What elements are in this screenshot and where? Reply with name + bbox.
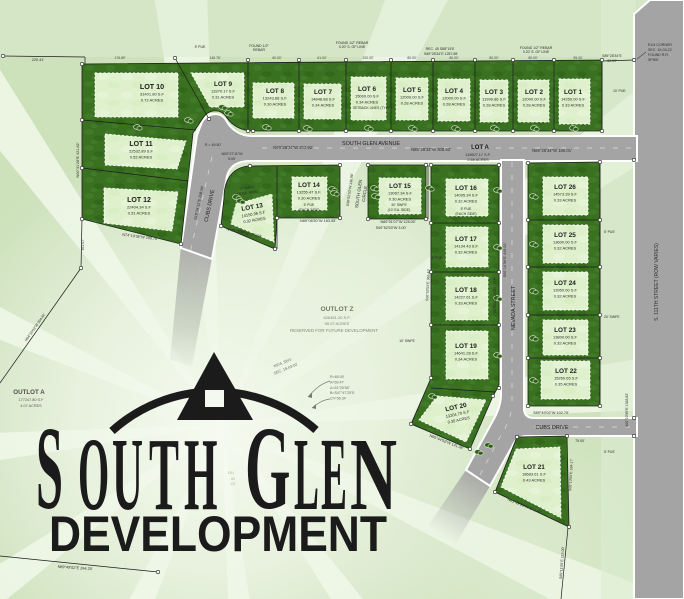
- svg-text:LOT 21: LOT 21: [523, 464, 545, 471]
- svg-text:S. 111TH STREET (ROW VARIES): S. 111TH STREET (ROW VARIES): [654, 243, 660, 321]
- svg-text:14134.43 S.F: 14134.43 S.F: [454, 244, 479, 249]
- svg-text:CS: CS: [231, 482, 236, 486]
- svg-text:220.41': 220.41': [32, 58, 45, 62]
- svg-text:60.00': 60.00': [607, 59, 617, 63]
- svg-text:REBAR: REBAR: [253, 48, 266, 52]
- svg-text:5' PUE: 5' PUE: [195, 45, 206, 49]
- svg-text:0.43 ACRES: 0.43 ACRES: [523, 478, 546, 483]
- svg-text:626451.20 S.F.: 626451.20 S.F.: [324, 315, 351, 320]
- svg-text:0.32 ACRES: 0.32 ACRES: [554, 294, 577, 299]
- svg-text:10' SWFE: 10' SWFE: [399, 339, 415, 343]
- svg-text:95.97 ACRES: 95.97 ACRES: [325, 321, 350, 326]
- svg-text:14641.28 S.F: 14641.28 S.F: [454, 351, 479, 356]
- svg-text:SETBACK LINES (TYP): SETBACK LINES (TYP): [493, 277, 497, 313]
- svg-text:11999.86 S.F: 11999.86 S.F: [482, 97, 506, 102]
- svg-text:LOT 9: LOT 9: [214, 81, 233, 88]
- svg-text:161.57': 161.57': [81, 239, 85, 251]
- svg-text:R = 49.50': R = 49.50': [205, 143, 222, 147]
- svg-text:B=S47°47'25"E: B=S47°47'25"E: [330, 391, 355, 395]
- svg-text:(10' EA. SIDE): (10' EA. SIDE): [388, 208, 411, 212]
- svg-text:LOT 22: LOT 22: [555, 368, 577, 375]
- svg-text:REC. 45 S88°19'E: REC. 45 S88°19'E: [426, 47, 455, 51]
- svg-text:0.31 ACRES: 0.31 ACRES: [212, 95, 235, 100]
- svg-text:LOT 18: LOT 18: [455, 287, 477, 294]
- svg-text:N89°08'30"W 183.95': N89°08'30"W 183.95': [300, 219, 336, 223]
- svg-text:LOT 1: LOT 1: [564, 89, 583, 96]
- svg-text:119607.17 S.F.: 119607.17 S.F.: [465, 153, 490, 157]
- svg-text:LOT 25: LOT 25: [554, 232, 576, 239]
- svg-text:DEVELOPMENT: DEVELOPMENT: [49, 506, 387, 562]
- svg-text:0.34 ACRES: 0.34 ACRES: [455, 357, 478, 362]
- svg-text:LOT 16: LOT 16: [455, 185, 477, 192]
- svg-text:SOUTH GLEN AVENUE: SOUTH GLEN AVENUE: [342, 141, 400, 147]
- svg-text:OU: OU: [228, 470, 234, 475]
- svg-text:13370.17 S.F: 13370.17 S.F: [211, 89, 236, 94]
- svg-text:S89°49'02"W 102.79': S89°49'02"W 102.79': [533, 411, 569, 415]
- svg-text:RESERVED FOR FUTURE DEVELOPMEN: RESERVED FOR FUTURE DEVELOPMENT: [290, 328, 378, 333]
- svg-text:80.00': 80.00': [528, 56, 537, 60]
- svg-text:(EACH SIDE): (EACH SIDE): [298, 208, 319, 212]
- svg-text:18683.61 S.F: 18683.61 S.F: [522, 472, 547, 477]
- svg-text:0.32 ACRES: 0.32 ACRES: [554, 341, 577, 346]
- svg-text:N00°31'26"E 421.82': N00°31'26"E 421.82': [76, 142, 80, 177]
- svg-text:80.00': 80.00': [489, 56, 498, 60]
- svg-text:2.68 ACRES: 2.68 ACRES: [467, 158, 489, 162]
- svg-text:13255.47 S.F.: 13255.47 S.F.: [297, 190, 322, 195]
- svg-text:0.32 ACRES: 0.32 ACRES: [455, 250, 478, 255]
- svg-text:0.28 ACRES: 0.28 ACRES: [401, 101, 424, 106]
- svg-text:31401.80 S.F: 31401.80 S.F: [140, 92, 165, 97]
- svg-text:LOT A: LOT A: [471, 145, 489, 151]
- svg-text:Ch=56.34': Ch=56.34': [330, 397, 347, 401]
- svg-text:NEVADA STREET: NEVADA STREET: [511, 285, 517, 330]
- svg-text:R=65.00': R=65.00': [330, 375, 345, 379]
- svg-text:0.33 ACRES: 0.33 ACRES: [562, 103, 585, 108]
- svg-text:0.20' S. OF LINE: 0.20' S. OF LINE: [523, 50, 550, 54]
- svg-text:100.00': 100.00': [362, 56, 373, 60]
- svg-text:N89°28'34"W 308.93': N89°28'34"W 308.93': [411, 147, 451, 152]
- svg-text:14848.88 S.F: 14848.88 S.F: [311, 97, 336, 102]
- svg-text:S89°28'34"E: S89°28'34"E: [602, 54, 622, 58]
- svg-text:0.32 ACRES: 0.32 ACRES: [455, 199, 478, 204]
- svg-text:176.89': 176.89': [114, 56, 125, 60]
- svg-text:0.32 ACRES: 0.32 ACRES: [554, 246, 577, 251]
- svg-text:80.00': 80.00': [449, 56, 458, 60]
- svg-text:80.00': 80.00': [407, 56, 416, 60]
- svg-text:Δ=51°25'58": Δ=51°25'58": [330, 386, 351, 390]
- svg-text:FOUND R.R.: FOUND R.R.: [648, 53, 669, 57]
- svg-text:LOT 23: LOT 23: [554, 327, 576, 334]
- svg-text:13067.34 S.F: 13067.34 S.F: [388, 191, 413, 196]
- svg-text:0.30 ACRES: 0.30 ACRES: [264, 102, 287, 107]
- svg-text:0.35 ACRES: 0.35 ACRES: [555, 382, 578, 387]
- svg-text:95.00': 95.00': [573, 56, 582, 60]
- svg-text:5' PUE: 5' PUE: [304, 203, 315, 207]
- svg-text:LOT 19: LOT 19: [455, 343, 477, 350]
- svg-text:0.72 ACRES: 0.72 ACRES: [141, 98, 164, 103]
- svg-text:145.76': 145.76': [209, 56, 220, 60]
- svg-text:13243.68 S.F.: 13243.68 S.F.: [263, 96, 288, 101]
- svg-text:14573.39 S.F: 14573.39 S.F: [553, 192, 578, 197]
- svg-text:N89°28'34"W 180.01': N89°28'34"W 180.01': [532, 148, 572, 153]
- svg-text:OUTLOT A: OUTLOT A: [13, 389, 45, 396]
- svg-text:LOT 2: LOT 2: [525, 89, 544, 96]
- svg-text:LOT 8: LOT 8: [266, 88, 285, 95]
- svg-text:N89°01'07"W 125.00': N89°01'07"W 125.00': [381, 220, 416, 224]
- svg-text:CUBS DRIVE: CUBS DRIVE: [536, 425, 569, 431]
- svg-text:0.52 ACRES: 0.52 ACRES: [130, 155, 153, 160]
- svg-text:LOT 5: LOT 5: [403, 87, 422, 94]
- svg-text:N89°28'34"W 253.92': N89°28'34"W 253.92': [273, 145, 313, 150]
- svg-text:S00°52'53"W 3.00': S00°52'53"W 3.00': [376, 226, 407, 230]
- svg-text:14227.61 S.F: 14227.61 S.F: [454, 295, 479, 300]
- svg-text:14250.00 S.F: 14250.00 S.F: [561, 97, 586, 102]
- svg-text:SPIKE: SPIKE: [648, 58, 659, 62]
- svg-text:60: 60: [231, 477, 235, 481]
- svg-text:0.51 ACRES: 0.51 ACRES: [128, 211, 151, 216]
- svg-text:LOT 3: LOT 3: [485, 89, 504, 96]
- svg-text:61.00': 61.00': [317, 56, 326, 60]
- svg-text:10' PUE: 10' PUE: [613, 89, 626, 93]
- svg-text:LOT 12: LOT 12: [127, 197, 151, 204]
- svg-text:LOT 17: LOT 17: [455, 236, 477, 243]
- svg-text:0.20' S. OF LINE: 0.20' S. OF LINE: [339, 45, 366, 49]
- svg-text:LOT 11: LOT 11: [129, 141, 152, 148]
- svg-text:0.28 ACRES: 0.28 ACRES: [523, 103, 546, 108]
- svg-text:30' SWFE: 30' SWFE: [391, 203, 407, 207]
- svg-text:22404.34 S.F: 22404.34 S.F: [127, 205, 152, 210]
- svg-text:LOT 10: LOT 10: [140, 82, 164, 91]
- svg-text:60.00': 60.00': [272, 56, 281, 60]
- svg-text:LOT 7: LOT 7: [314, 89, 333, 96]
- svg-text:0.33 ACRES: 0.33 ACRES: [455, 301, 478, 306]
- svg-text:LOT 4: LOT 4: [445, 88, 464, 95]
- svg-text:5' PUE: 5' PUE: [604, 450, 615, 454]
- svg-text:LOT 14: LOT 14: [298, 182, 320, 189]
- svg-text:LOT 26: LOT 26: [554, 184, 576, 191]
- svg-text:0.28 ACRES: 0.28 ACRES: [483, 103, 506, 108]
- svg-text:S00°10'56"E 1328.82': S00°10'56"E 1328.82': [625, 393, 629, 427]
- svg-text:5' PUE: 5' PUE: [604, 230, 615, 234]
- svg-text:E1/4 CORNER: E1/4 CORNER: [648, 43, 672, 47]
- svg-text:5.00': 5.00': [228, 157, 236, 161]
- svg-text:15000.00 S.F: 15000.00 S.F: [355, 94, 380, 99]
- svg-text:OUTLOT Z: OUTLOT Z: [321, 306, 354, 313]
- svg-text:0.34 ACRES: 0.34 ACRES: [356, 100, 379, 105]
- svg-text:0.33 ACRES: 0.33 ACRES: [554, 198, 577, 203]
- svg-text:LOT 6: LOT 6: [358, 86, 377, 93]
- svg-text:8' PUE: 8' PUE: [432, 256, 443, 260]
- svg-text:0.34 ACRES: 0.34 ACRES: [312, 103, 335, 108]
- svg-text:12000.00 S.F: 12000.00 S.F: [522, 97, 547, 102]
- svg-text:13950.00 S.F: 13950.00 S.F: [553, 288, 578, 293]
- svg-text:LOT 24: LOT 24: [554, 280, 576, 287]
- svg-text:A=59.47': A=59.47': [330, 380, 344, 384]
- svg-text:LOT 15: LOT 15: [389, 183, 411, 190]
- svg-text:5' PUE: 5' PUE: [461, 207, 472, 211]
- svg-text:13600.00 S.F: 13600.00 S.F: [553, 240, 578, 245]
- svg-text:15260.65 S.F: 15260.65 S.F: [554, 376, 579, 381]
- svg-text:0.30 ACRES: 0.30 ACRES: [298, 196, 321, 201]
- svg-text:S00°10'56"E 449.92': S00°10'56"E 449.92': [503, 242, 507, 277]
- svg-text:12000.00 S.F: 12000.00 S.F: [400, 95, 425, 100]
- svg-text:13800.00 S.F: 13800.00 S.F: [553, 335, 578, 340]
- svg-text:14095.34 S.F: 14095.34 S.F: [454, 193, 479, 198]
- svg-text:SEC. 19-03-22: SEC. 19-03-22: [648, 48, 672, 52]
- svg-text:N00°27'11"W: N00°27'11"W: [221, 152, 243, 156]
- svg-text:12000.00 S.F: 12000.00 S.F: [442, 96, 467, 101]
- svg-text:20' SWFE: 20' SWFE: [604, 315, 620, 319]
- svg-text:75.00': 75.00': [575, 439, 585, 443]
- svg-text:(EACH SIDE): (EACH SIDE): [455, 212, 476, 216]
- svg-text:22532.89 S.F: 22532.89 S.F: [129, 149, 154, 154]
- svg-text:0.28 ACRES: 0.28 ACRES: [443, 102, 466, 107]
- svg-text:SETBACK LINES (TYP): SETBACK LINES (TYP): [353, 106, 389, 110]
- svg-text:0.30 ACRES: 0.30 ACRES: [389, 197, 412, 202]
